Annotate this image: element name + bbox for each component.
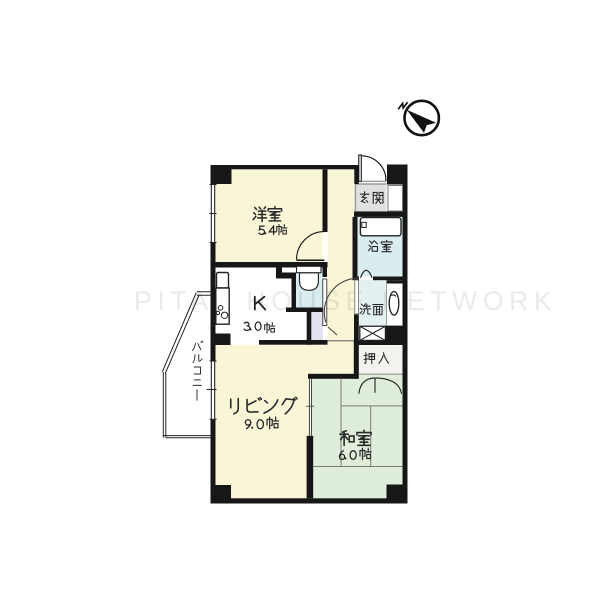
svg-text:PITAT HOUSE NETWORK: PITAT HOUSE NETWORK bbox=[134, 286, 557, 316]
